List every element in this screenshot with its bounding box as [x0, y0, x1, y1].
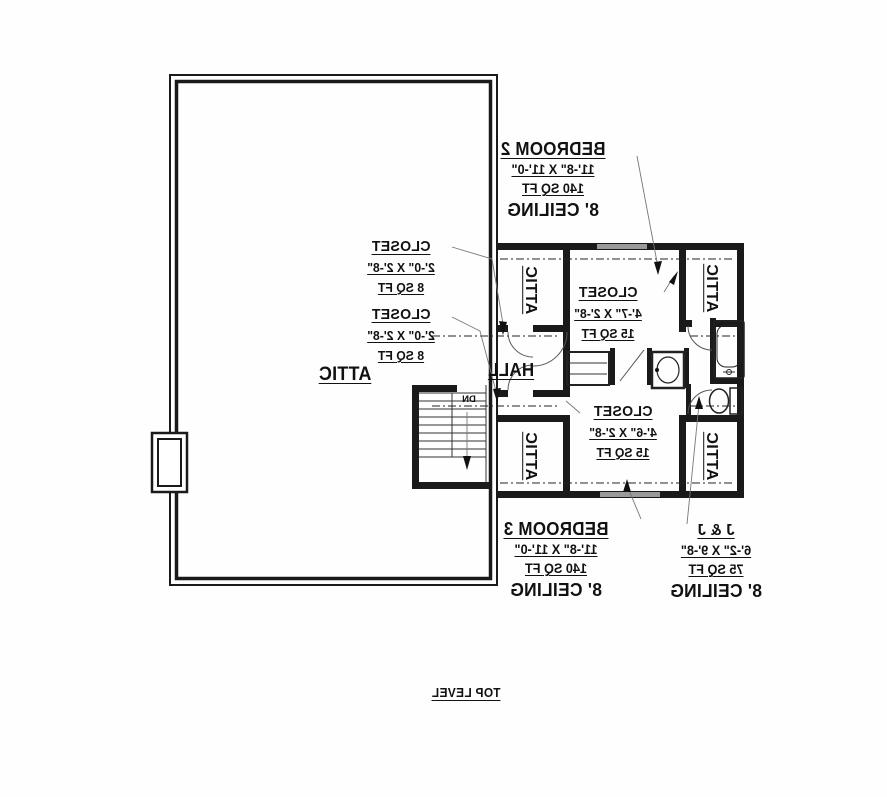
- room-dimensions: 4'-6" X 2'-8": [557, 422, 689, 443]
- room-ceiling: 8' CEILING: [459, 198, 647, 221]
- room-area: 8 SQ FT: [335, 346, 467, 366]
- room-area: 8 SQ FT: [335, 278, 467, 298]
- room-label-hall: HALL: [464, 360, 558, 381]
- room-ceiling: 8' CEILING: [622, 579, 810, 602]
- room-name: CLOSET: [335, 305, 467, 325]
- room-name: CLOSET: [335, 237, 467, 257]
- floor-plan-drawing: [0, 0, 887, 797]
- room-name: ATTIC: [702, 432, 720, 480]
- room-area: 15 SQ FT: [557, 443, 689, 463]
- chimney: [152, 433, 187, 492]
- room-label-attic-nook-bottom-right: ATTIC: [679, 424, 743, 488]
- room-label-closet-left-upper: CLOSET 2'-0" X 2'-8" 8 SQ FT: [335, 237, 467, 298]
- stair-direction-arrow: [463, 456, 471, 470]
- room-dimensions: 2'-0" X 2'-8": [335, 325, 467, 346]
- room-area: 140 SQ FT: [459, 179, 647, 198]
- sheet-title: TOP LEVEL: [395, 686, 538, 700]
- stairs-down-label: DN: [447, 394, 491, 405]
- sink-vanity: [652, 352, 684, 388]
- room-area: 15 SQ FT: [542, 324, 674, 344]
- room-label-attic-nook-bottom-left: ATTIC: [498, 424, 562, 488]
- room-name: ATTIC: [279, 364, 411, 385]
- room-name: BEDROOM 2: [459, 139, 647, 160]
- room-label-closet-left-lower: CLOSET 2'-0" X 2'-8" 8 SQ FT: [335, 305, 467, 366]
- room-name: CLOSET: [557, 402, 689, 422]
- room-label-attic-main: ATTIC: [279, 364, 411, 385]
- room-name: J & J: [622, 520, 810, 541]
- room-label-attic-nook-top-right: ATTIC: [679, 256, 743, 320]
- room-name: ATTIC: [521, 432, 539, 480]
- floor-plan-page: BEDROOM 2 11'-8" X 11'-0" 140 SQ FT 8' C…: [0, 0, 887, 797]
- room-dimensions: 6'-2" X 9'-8": [622, 541, 810, 560]
- door-leaf: [620, 350, 644, 381]
- room-label-attic-nook-top-left: ATTIC: [498, 258, 562, 322]
- room-area: 75 SQ FT: [622, 560, 810, 579]
- linen-shelves: [567, 352, 609, 385]
- room-label-closet-center-lower: CLOSET 4'-6" X 2'-8" 15 SQ FT: [557, 402, 689, 463]
- room-name: ATTIC: [521, 266, 539, 314]
- room-name: HALL: [464, 360, 558, 381]
- room-label-bedroom2: BEDROOM 2 11'-8" X 11'-0" 140 SQ FT 8' C…: [459, 139, 647, 221]
- room-dimensions: 2'-0" X 2'-8": [335, 257, 467, 278]
- room-label-jack-and-jill: J & J 6'-2" X 9'-8" 75 SQ FT 8' CEILING: [622, 520, 810, 602]
- room-dimensions: 11'-8" X 11'-0": [459, 160, 647, 179]
- room-name: ATTIC: [702, 264, 720, 312]
